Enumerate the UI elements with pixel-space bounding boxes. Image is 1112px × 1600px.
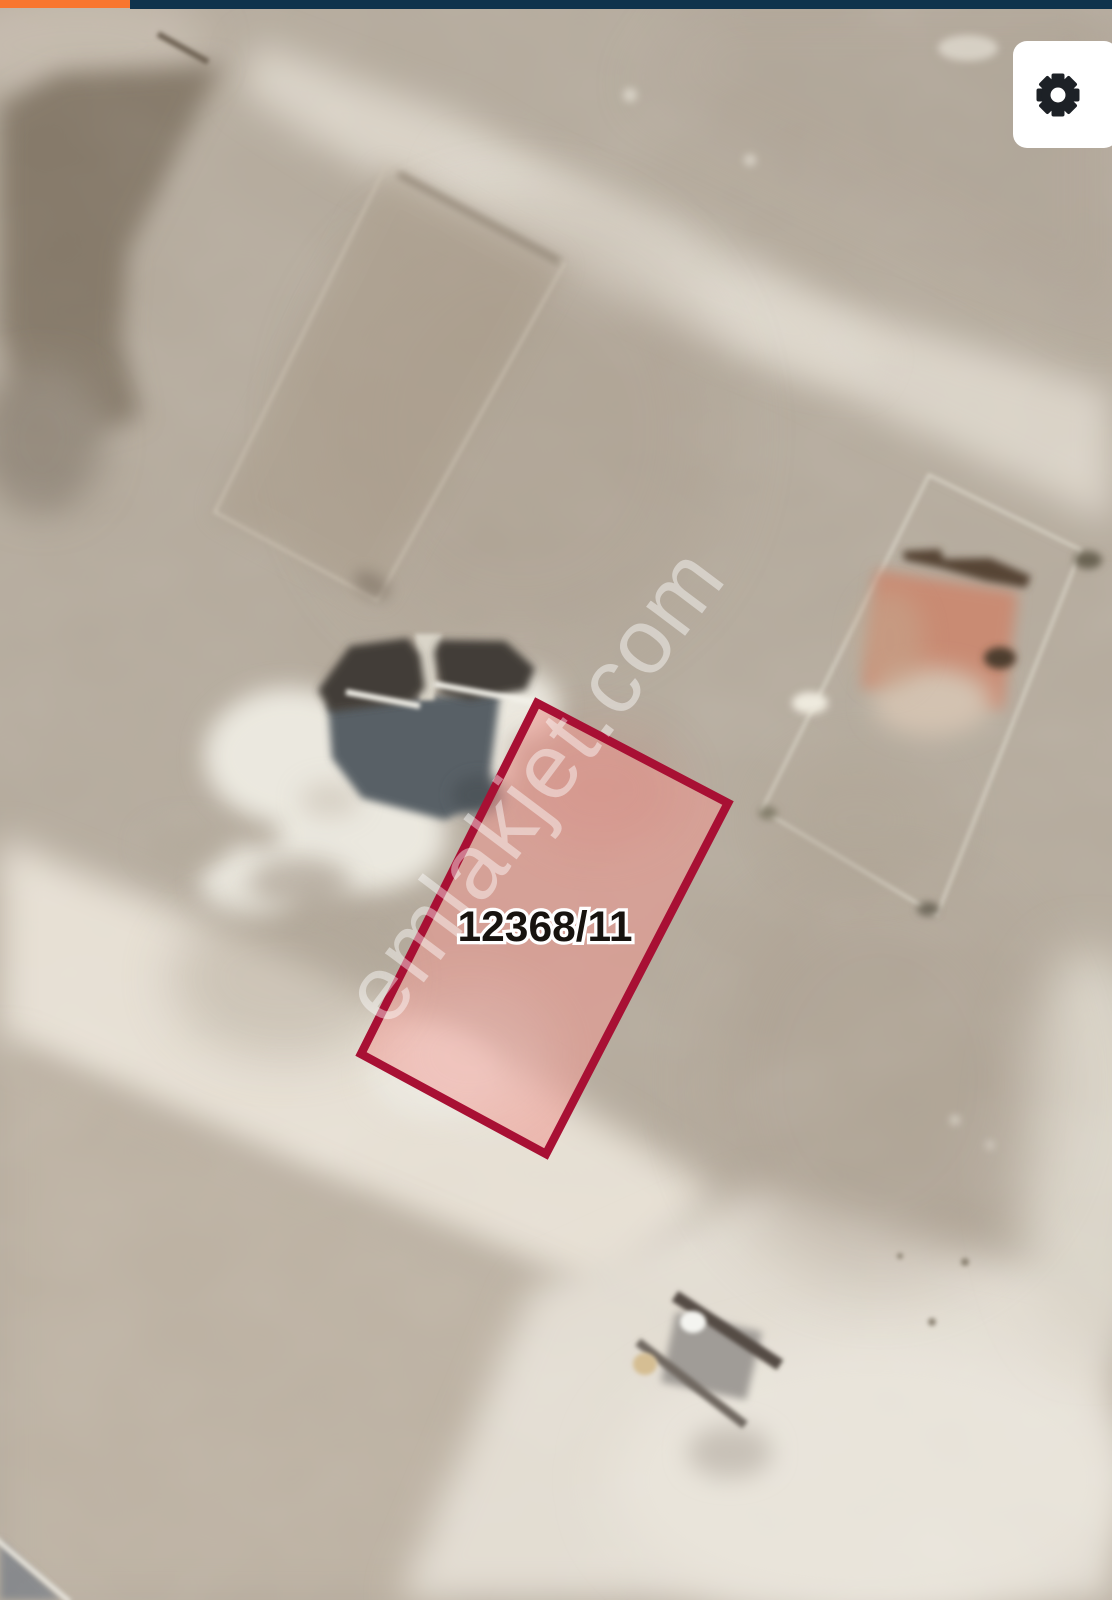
svg-text:12368/11: 12368/11 [458,904,633,951]
